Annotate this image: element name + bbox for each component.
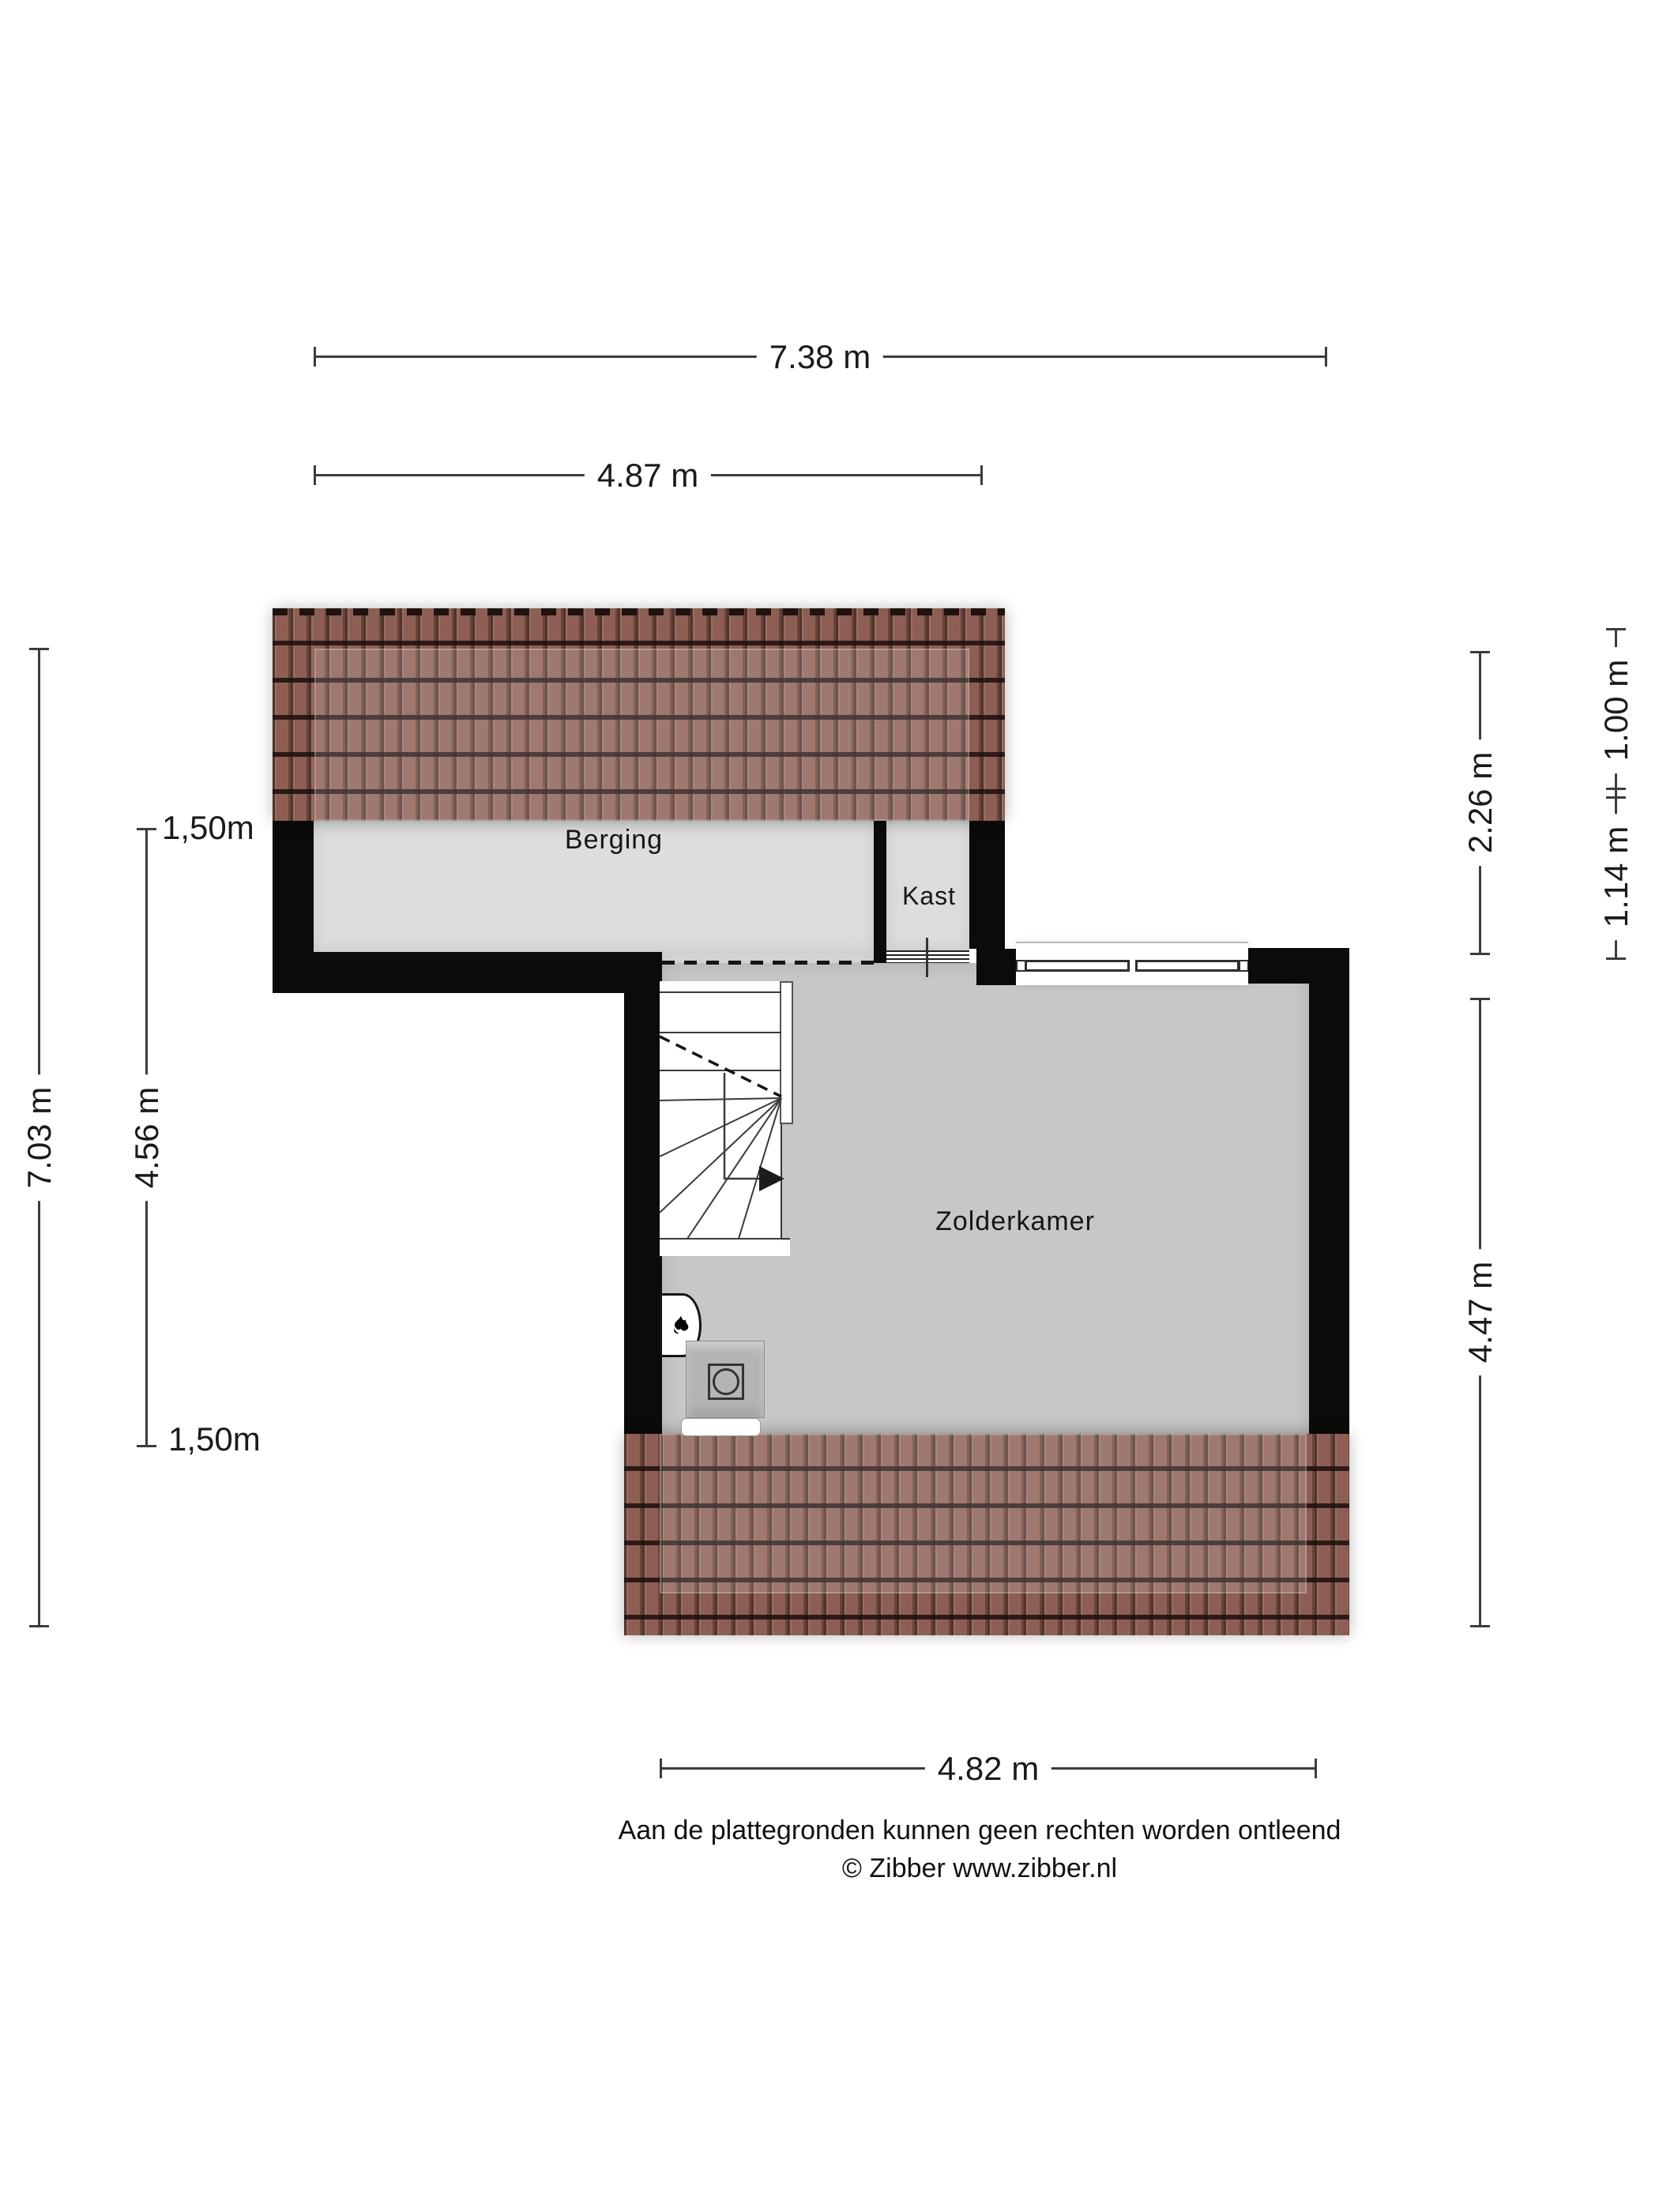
wall bbox=[969, 821, 1005, 949]
washing-machine-icon bbox=[686, 1341, 765, 1418]
dim-label-right-outer-bottom: 1.14 m bbox=[1595, 814, 1638, 940]
staircase bbox=[660, 981, 794, 1258]
washer-drum bbox=[713, 1368, 739, 1395]
clearance-label-bottom: 1,50m bbox=[168, 1423, 261, 1456]
wall bbox=[1248, 948, 1349, 984]
dim-label-right-upper: 2.26 m bbox=[1459, 739, 1502, 866]
dim-label-right-outer-top: 1.00 m bbox=[1595, 647, 1638, 773]
dim-label-right-lower: 4.47 m bbox=[1459, 1249, 1502, 1375]
footer-disclaimer: Aan de plattegronden kunnen geen rechten… bbox=[619, 1817, 1341, 1844]
footer-copyright: © Zibber www.zibber.nl bbox=[842, 1855, 1117, 1882]
boiler-flame-icon bbox=[669, 1314, 693, 1337]
stair-well bbox=[660, 981, 781, 1256]
room-label-zolderkamer: Zolderkamer bbox=[935, 1208, 1095, 1235]
stair-landing bbox=[660, 1240, 790, 1256]
dim-label-top-berging: 4.87 m bbox=[585, 454, 711, 497]
room-label-berging: Berging bbox=[565, 826, 663, 853]
roof-tile-tips bbox=[273, 608, 1005, 615]
dim-label-bottom: 4.82 m bbox=[925, 1747, 1051, 1790]
roof-footprint-overlay bbox=[660, 1434, 1307, 1593]
headroom-dashed-line bbox=[662, 961, 874, 965]
window-pane bbox=[1135, 960, 1240, 972]
dim-label-top-total: 7.38 m bbox=[757, 336, 883, 378]
window-pane bbox=[1025, 960, 1130, 972]
clearance-label-top: 1,50m bbox=[162, 811, 254, 845]
dim-label-left-total: 7.03 m bbox=[18, 1074, 61, 1201]
wall bbox=[976, 949, 1016, 985]
dim-tick bbox=[1606, 796, 1626, 799]
stair-railing bbox=[781, 982, 792, 1123]
dim-tick bbox=[1606, 788, 1626, 790]
wall bbox=[874, 821, 886, 963]
room-label-kast: Kast bbox=[902, 883, 956, 908]
floorplan-page: 7.38 m 4.87 m 7.03 m 4.56 m 1,50m 1,50m … bbox=[0, 0, 1659, 2212]
dim-label-left-inner: 4.56 m bbox=[126, 1074, 168, 1201]
wall bbox=[624, 952, 662, 1435]
washer-door-frame bbox=[708, 1364, 744, 1400]
wall bbox=[1309, 984, 1349, 1435]
washer-drawer bbox=[681, 1418, 761, 1436]
wall bbox=[273, 952, 660, 993]
kast-door-leaf bbox=[926, 938, 928, 977]
roof-footprint-overlay bbox=[314, 649, 969, 821]
